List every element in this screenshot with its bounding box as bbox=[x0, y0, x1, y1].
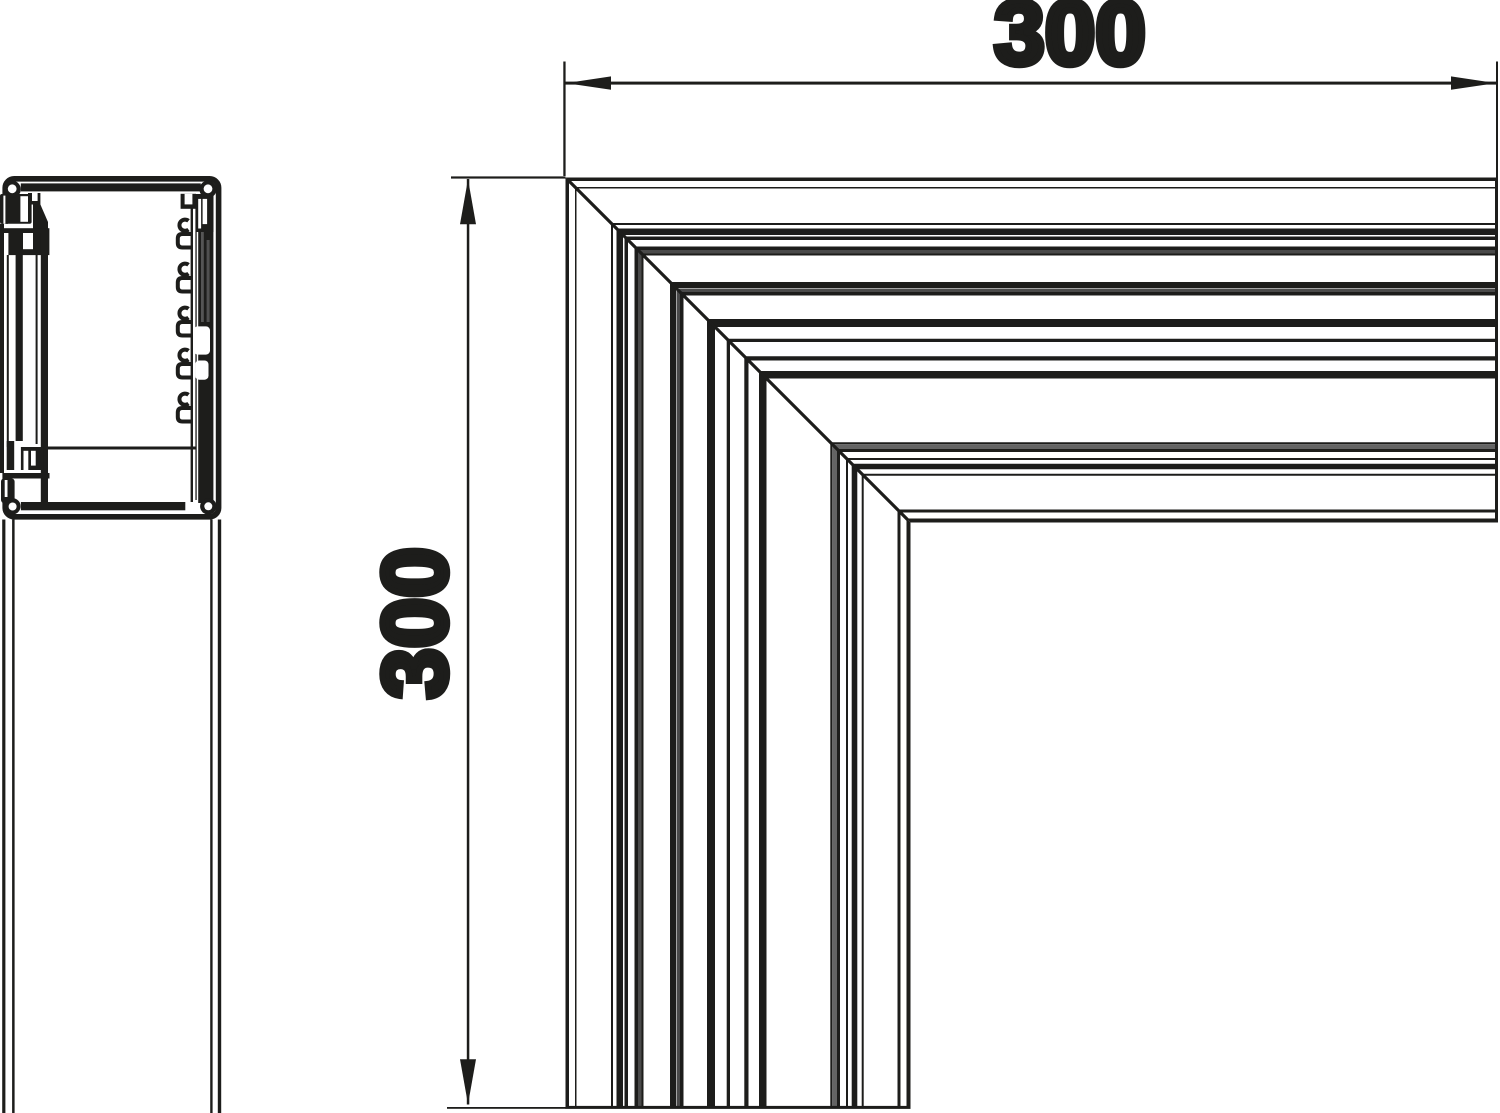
svg-text:300: 300 bbox=[365, 547, 466, 699]
svg-text:300: 300 bbox=[994, 0, 1146, 84]
